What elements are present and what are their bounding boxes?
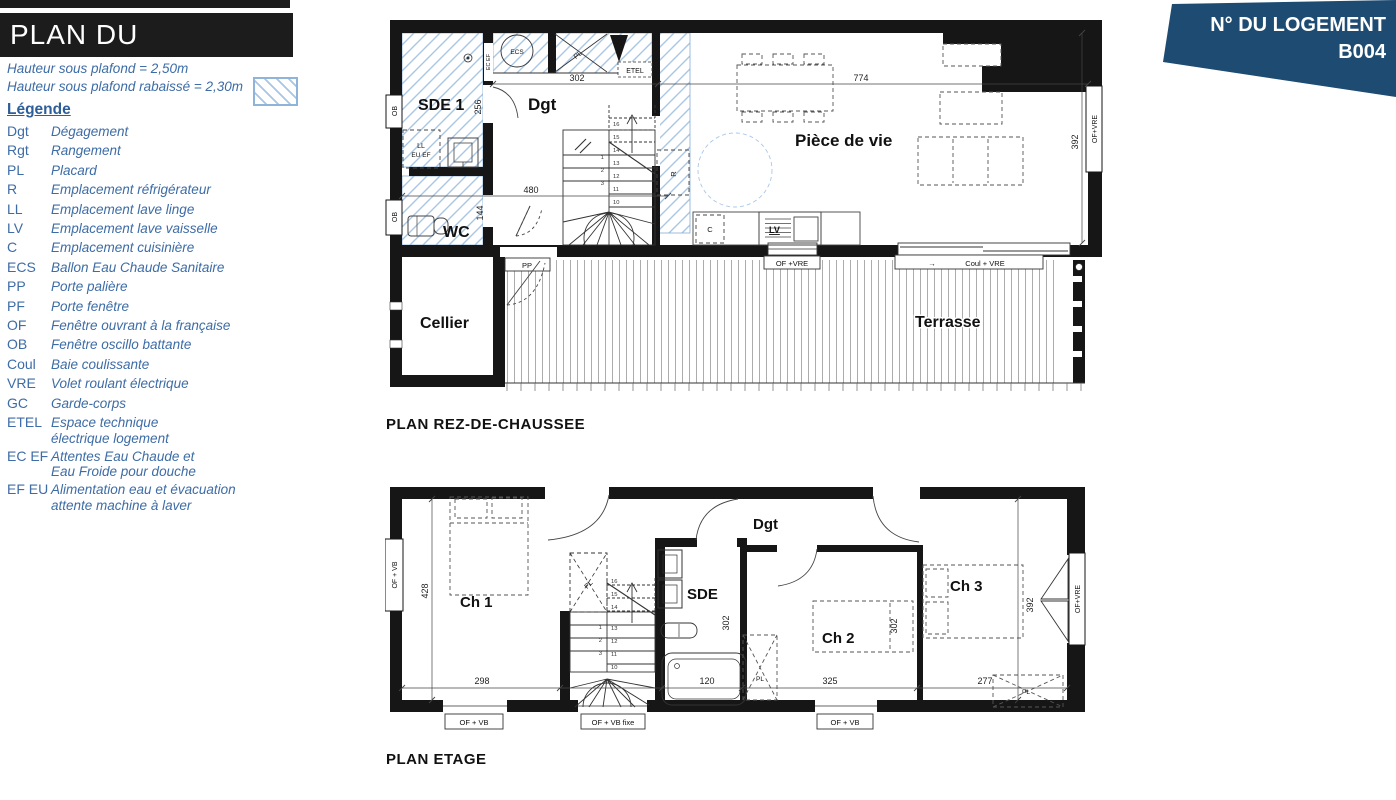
svg-text:1: 1 (601, 155, 604, 161)
dim-480: 480 (523, 185, 538, 195)
svg-text:13: 13 (611, 626, 617, 632)
pl-closet-label-2: PL (756, 676, 764, 683)
dim-302-ch2: 302 (889, 618, 899, 633)
dim-144: 144 (475, 205, 485, 220)
window-of-vb-2-label: OF + VB (831, 718, 860, 727)
svg-text:3: 3 (599, 651, 602, 657)
legend-item: DgtDégagement (7, 122, 307, 141)
window-of-vb-1-label: OF + VB (460, 718, 489, 727)
legend-item: LLEmplacement lave linge (7, 200, 307, 219)
bay-coul-vre-label: Coul + VRE (965, 259, 1004, 268)
dim-256: 256 (473, 99, 483, 114)
room-label-terrasse: Terrasse (915, 314, 981, 331)
dim-428: 428 (420, 583, 430, 598)
svg-text:1: 1 (599, 625, 602, 631)
door-swings (548, 495, 919, 586)
svg-text:14: 14 (611, 605, 618, 611)
svg-text:16: 16 (613, 122, 619, 128)
cooker-label: C (707, 225, 713, 234)
ec-ef-label: EC EF (486, 53, 492, 70)
hatch-legend-swatch (253, 77, 298, 106)
window-ob2-label: OB (392, 212, 399, 222)
legend-item: PFPorte fenêtre (7, 297, 307, 316)
unit-number-badge: N° DU LOGEMENT B004 (1130, 0, 1396, 110)
dim-302-sde: 302 (721, 615, 731, 630)
ground-floor-plan: OB OB OF+VRE OF +VRE → Coul + VRE PP EC … (385, 10, 1110, 402)
svg-text:3: 3 (601, 181, 604, 187)
dim-325: 325 (822, 676, 837, 686)
top-black-strip (0, 0, 290, 8)
window-of-vre-right-label: OF+VRE (1092, 115, 1099, 144)
svg-text:12: 12 (611, 639, 617, 645)
fridge-label: R (669, 171, 678, 177)
legend-heading: Légende (7, 101, 71, 119)
etel-label: ETEL (626, 68, 644, 75)
dim-120: 120 (699, 676, 714, 686)
lowered-ceiling-note: Hauteur sous plafond rabaissé = 2,30m (7, 79, 243, 94)
dim-298: 298 (474, 676, 489, 686)
dim-774: 774 (853, 73, 868, 83)
ground-floor-title: PLAN REZ-DE-CHAUSSEE (386, 416, 585, 433)
legend-item: EC EFAttentes Eau Chaude et Eau Froide p… (7, 449, 307, 481)
eu-ef-label: EU EF (411, 152, 430, 159)
svg-text:11: 11 (611, 652, 617, 658)
legend-item: PPPorte palière (7, 277, 307, 296)
coul-arrow: → (928, 259, 936, 268)
svg-text:10: 10 (611, 665, 617, 671)
room-label-dgt: Dgt (528, 95, 557, 114)
room-label-ch1: Ch 1 (460, 594, 493, 611)
upper-floor-title: PLAN ETAGE (386, 751, 487, 768)
ceiling-height-note: Hauteur sous plafond = 2,50m (7, 61, 188, 76)
room-label-piece-de-vie: Pièce de vie (795, 131, 892, 150)
room-label-dgt: Dgt (753, 516, 778, 533)
stair-numbers: 1 2 3 10 11 12 13 14 15 16 (601, 122, 620, 206)
legend-item: OFFenêtre ouvrant à la française (7, 316, 307, 335)
badge-title: N° DU LOGEMENT (1210, 14, 1386, 36)
unit-number: B004 (1338, 41, 1387, 63)
terrasse-deck (505, 260, 1085, 391)
dishwasher-label: LV (769, 225, 780, 235)
legend-item: RgtRangement (7, 141, 307, 160)
legend-item: PLPlacard (7, 161, 307, 180)
legend-item: CEmplacement cuisinière (7, 238, 307, 257)
page-title: PLAN DU LOGEMENT (0, 13, 293, 57)
svg-text:2: 2 (601, 168, 604, 174)
legend-item: OBFenêtre oscillo battante (7, 335, 307, 354)
room-label-ch2: Ch 2 (822, 630, 855, 647)
legend-item: VREVolet roulant électrique (7, 374, 307, 393)
window-of-vb-left-label: OF + VB (392, 561, 399, 588)
room-label-cellier: Cellier (420, 315, 469, 332)
ll-label: LL (417, 143, 425, 150)
window-of-vre-right-label: OF+VRE (1075, 585, 1082, 614)
legend-item: GCGarde-corps (7, 394, 307, 413)
svg-text:16: 16 (611, 579, 617, 585)
floor-plan-page: PLAN DU LOGEMENT Hauteur sous plafond = … (0, 0, 1396, 800)
wall-openings (483, 73, 660, 257)
legend-list: DgtDégagement RgtRangement PLPlacard REm… (7, 122, 307, 516)
door-pp-label: PP (522, 261, 532, 270)
room-label-wc: WC (443, 224, 470, 241)
legend-item: LVEmplacement lave vaisselle (7, 219, 307, 238)
room-label-sde1: SDE 1 (418, 97, 464, 114)
legend-item: ETELEspace technique électrique logement (7, 415, 307, 447)
legend-item: ECSBallon Eau Chaude Sanitaire (7, 258, 307, 277)
ecs-tank-label: ECS (510, 49, 524, 56)
legend-item: CoulBaie coulissante (7, 355, 307, 374)
window-of-vre-bottom-label: OF +VRE (776, 259, 808, 268)
living-furniture (698, 44, 1023, 207)
svg-text:2: 2 (599, 638, 602, 644)
svg-text:15: 15 (613, 135, 619, 141)
svg-text:12: 12 (613, 174, 619, 180)
svg-text:13: 13 (613, 161, 619, 167)
dim-392: 392 (1025, 597, 1035, 612)
dim-392: 392 (1070, 134, 1080, 149)
dim-302: 302 (569, 73, 584, 83)
svg-text:11: 11 (613, 187, 619, 193)
room-label-sde: SDE (687, 586, 718, 603)
room-label-ch3: Ch 3 (950, 578, 983, 595)
dim-277: 277 (977, 676, 992, 686)
window-of-vb-fixe-label: OF + VB fixe (592, 718, 635, 727)
dimensions: 298 120 325 277 428 392 302 (399, 496, 1070, 703)
svg-text:10: 10 (613, 200, 619, 206)
window-ob1-label: OB (392, 106, 399, 116)
svg-text:15: 15 (611, 592, 617, 598)
pl-closet-label-3: PL (1022, 689, 1030, 696)
svg-text:14: 14 (613, 148, 620, 154)
legend-item: REmplacement réfrigérateur (7, 180, 307, 199)
legend-item: EF EUAlimentation eau et évacuation atte… (7, 482, 307, 514)
upper-floor-plan: OF + VB OF+VRE OF + VB OF + VB fixe OF +… (385, 483, 1105, 735)
staircase (563, 105, 655, 245)
